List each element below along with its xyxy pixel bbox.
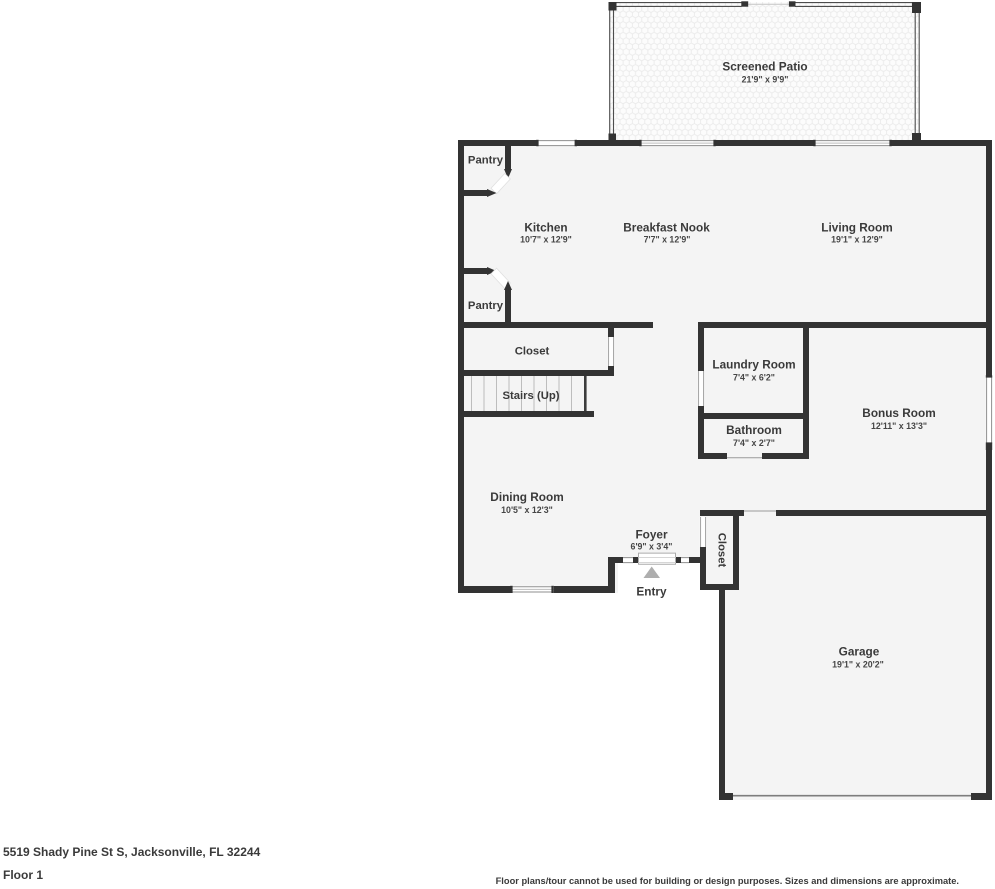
svg-text:21'9" x 9'9": 21'9" x 9'9" (742, 75, 789, 85)
svg-text:Laundry Room: Laundry Room (712, 358, 795, 372)
svg-text:Stairs (Up): Stairs (Up) (502, 390, 559, 402)
svg-text:7'4" x 2'7": 7'4" x 2'7" (733, 438, 775, 448)
svg-text:10'7" x 12'9": 10'7" x 12'9" (520, 235, 572, 245)
svg-text:Bonus Room: Bonus Room (862, 406, 935, 420)
svg-text:10'5" x 12'3": 10'5" x 12'3" (501, 505, 553, 515)
svg-text:Screened Patio: Screened Patio (722, 60, 807, 74)
svg-text:Pantry: Pantry (468, 155, 504, 167)
svg-text:Closet: Closet (716, 533, 728, 568)
svg-text:Pantry: Pantry (468, 300, 504, 312)
svg-text:6'9" x 3'4": 6'9" x 3'4" (631, 542, 673, 552)
svg-text:Kitchen: Kitchen (524, 221, 567, 235)
svg-text:Dining Room: Dining Room (490, 490, 563, 504)
svg-text:Foyer: Foyer (635, 528, 668, 542)
svg-text:19'1" x 12'9": 19'1" x 12'9" (831, 235, 883, 245)
svg-text:Floor 1: Floor 1 (3, 868, 43, 882)
svg-text:7'4" x 6'2": 7'4" x 6'2" (733, 373, 775, 383)
svg-text:Garage: Garage (839, 645, 880, 659)
svg-text:Entry: Entry (636, 585, 667, 599)
svg-text:Floor plans/tour cannot be use: Floor plans/tour cannot be used for buil… (496, 876, 959, 886)
svg-text:Bathroom: Bathroom (726, 423, 782, 437)
svg-text:Breakfast Nook: Breakfast Nook (623, 221, 710, 235)
svg-text:5519 Shady Pine St S, Jacksonv: 5519 Shady Pine St S, Jacksonville, FL 3… (3, 845, 261, 859)
svg-text:Living Room: Living Room (821, 221, 892, 235)
svg-text:Closet: Closet (515, 346, 550, 358)
svg-text:7'7" x 12'9": 7'7" x 12'9" (644, 235, 691, 245)
svg-text:12'11" x 13'3": 12'11" x 13'3" (871, 421, 927, 431)
svg-text:19'1" x 20'2": 19'1" x 20'2" (832, 660, 884, 670)
